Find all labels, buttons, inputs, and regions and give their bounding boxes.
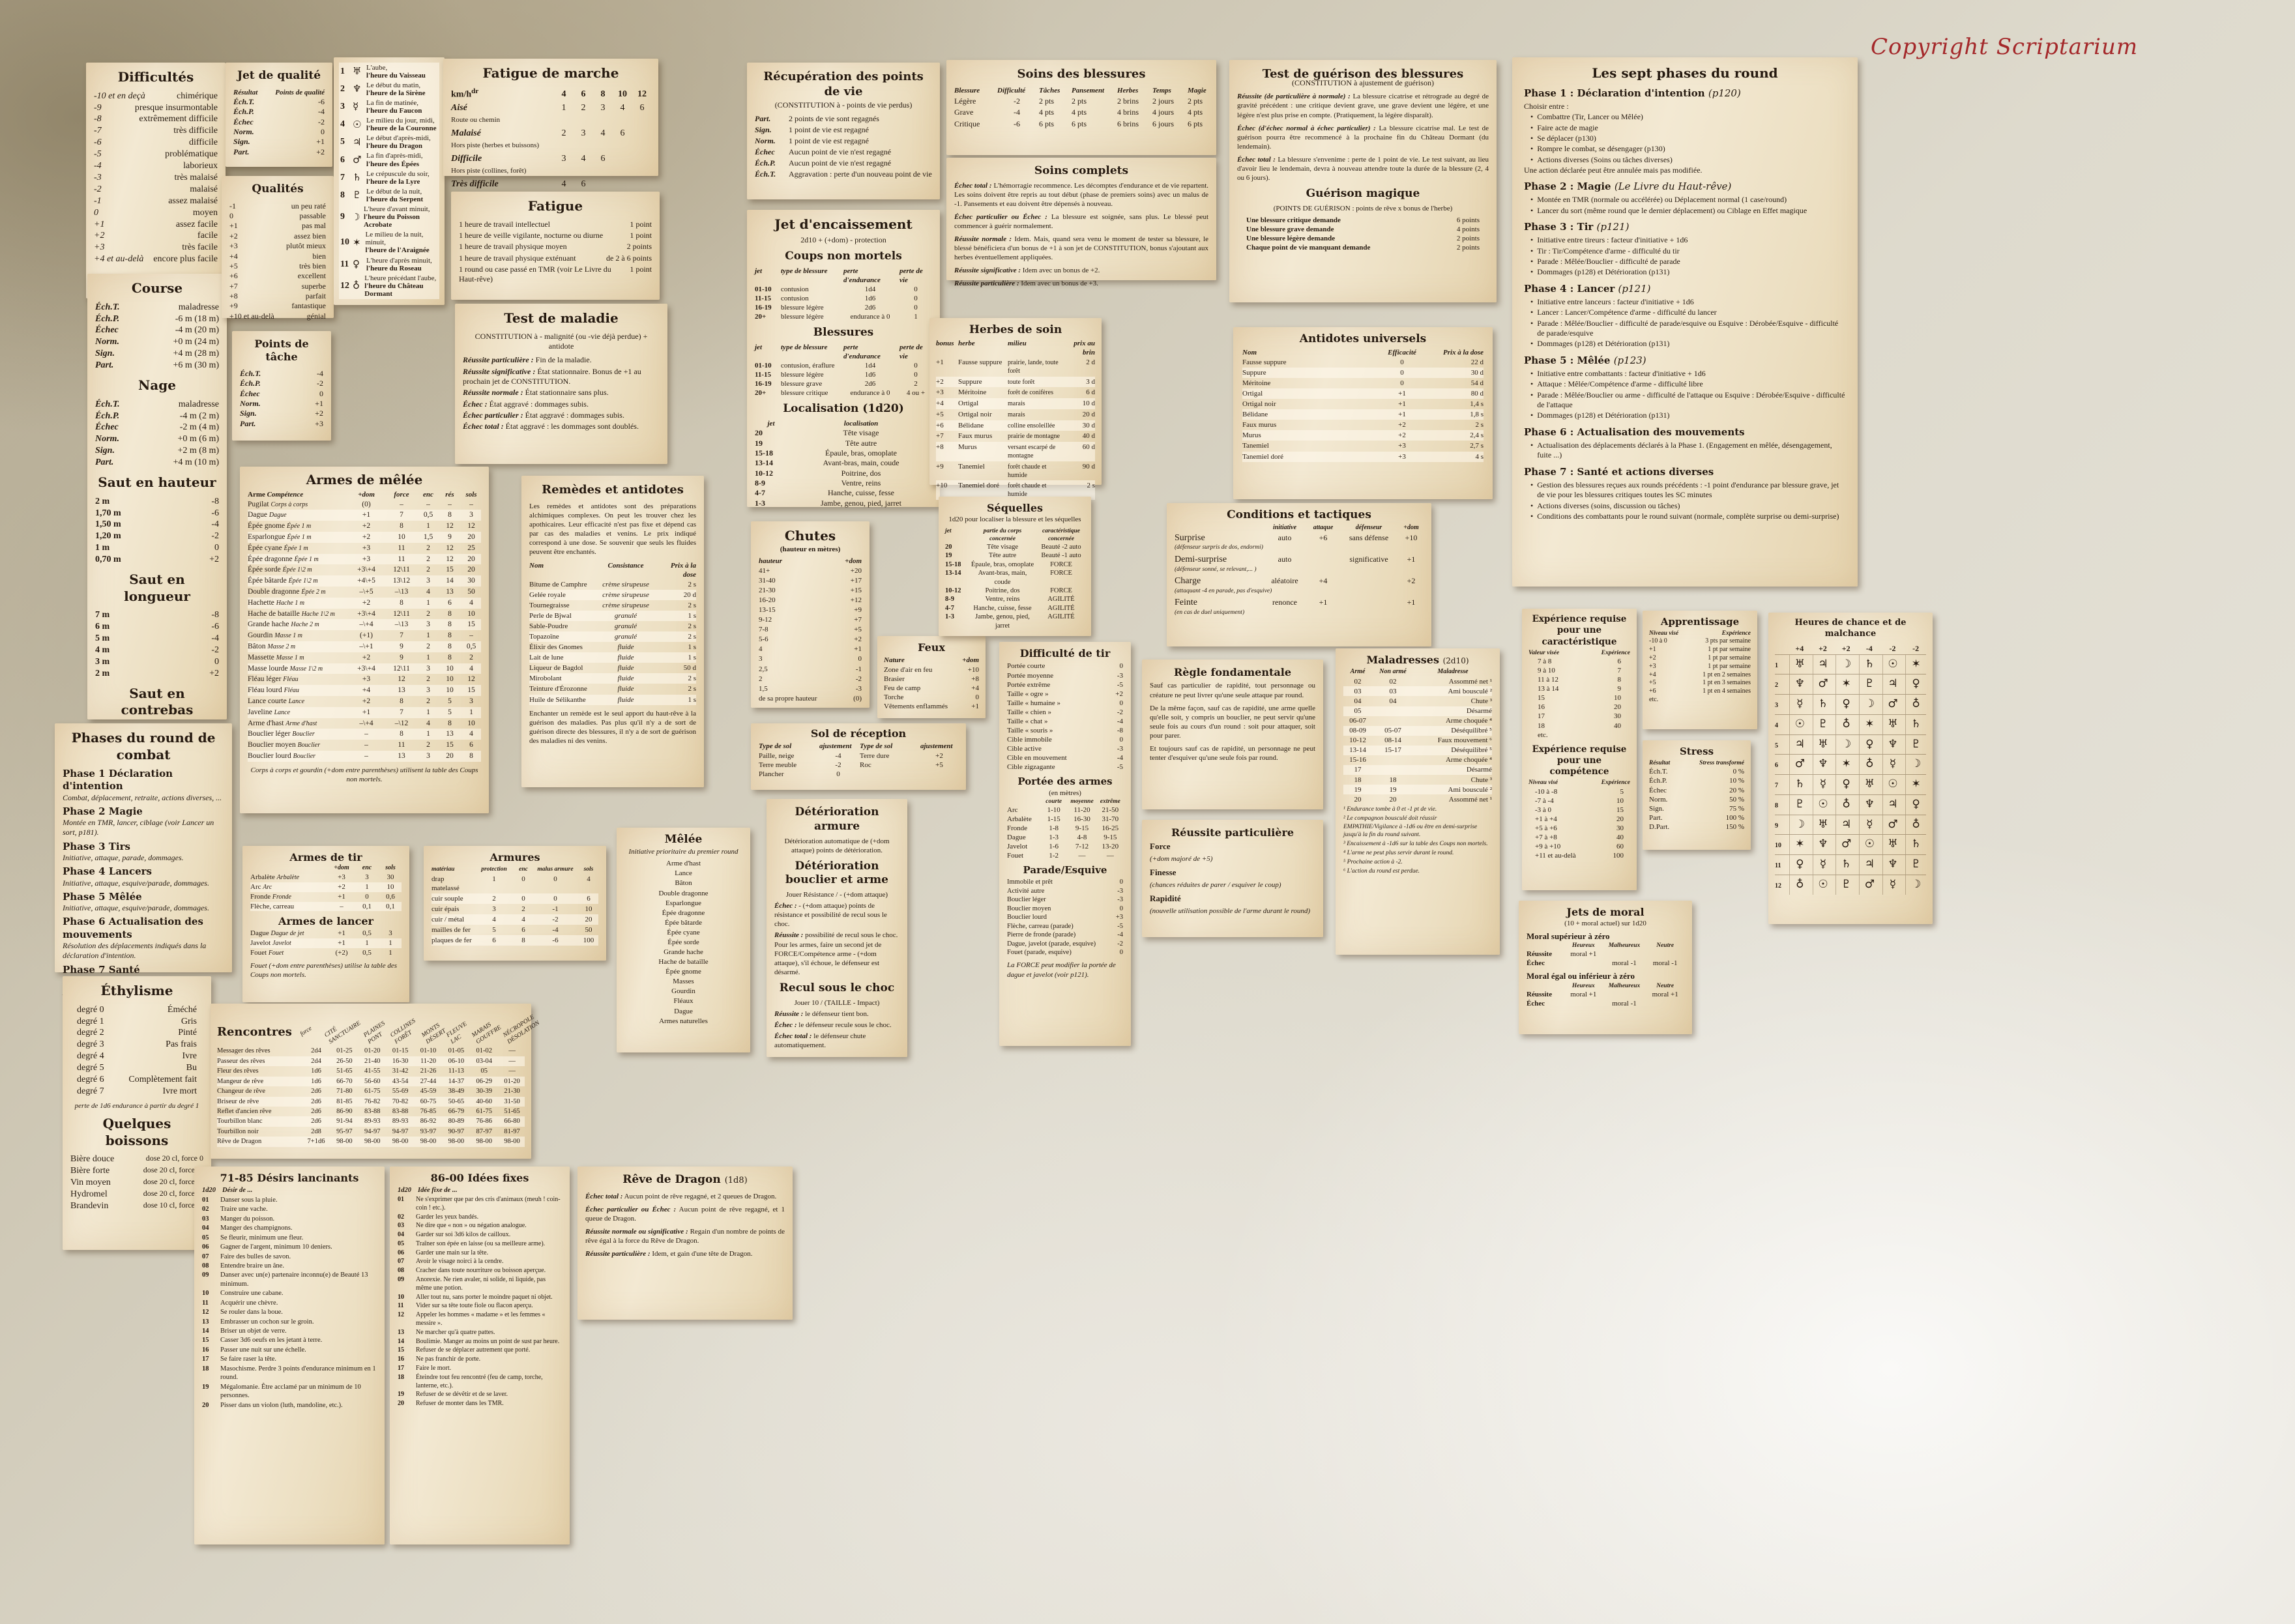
hour-sigil-icon: ♆ — [353, 83, 363, 95]
table-row: -2malaisé — [94, 184, 218, 196]
col-header: Type de sol — [860, 742, 918, 751]
paragraph: Détérioration automatique de (+dom attaq… — [774, 837, 899, 855]
phase-bullet: Montée en TMR (normale ou accélérée) ou … — [1530, 195, 1846, 205]
hour-sigil-icon: ☉ — [1813, 875, 1834, 895]
table-row: Terre meuble-2Roc+5 — [759, 761, 958, 770]
desirs-list: 01Danser sous la pluie.02Traire une vach… — [202, 1196, 377, 1410]
recuperation-table: Part.2 points de vie sont regagnésSign.1… — [755, 114, 932, 179]
col-header: extrême — [1098, 798, 1123, 805]
section-title: Guérison magique — [1237, 187, 1489, 201]
phase-bullet: Lancer du sort (même round que le dernie… — [1530, 206, 1846, 216]
table-row: degré 4Ivre — [77, 1051, 197, 1062]
table-row: 11 à 128 — [1538, 675, 1621, 684]
table-row: Éch.T.0 % — [1649, 767, 1744, 776]
table-row: +9Tanemielforêt chaude et humide90 d — [936, 461, 1095, 481]
armes-melee-table: Pugilat Corps à corps (0)–––– Dague Dagu… — [248, 499, 481, 762]
table-row: +5 à +630 — [1535, 824, 1624, 833]
table-row: Mangeur de rêve1d666-7056-6043-5427-4414… — [217, 1077, 525, 1086]
list-item: 03Manger du poisson. — [202, 1215, 377, 1223]
jet-qualite-table: Éch.T.-6Éch.P.-4Échec-2Norm.0Sign.+1Part… — [233, 97, 325, 157]
table-row: 1 heure de travail physique moyen2 point… — [459, 242, 652, 252]
list-item: 07Avoir le visage noirci à la cendre. — [398, 1258, 562, 1266]
fatigue-table: 1 heure de travail intellectuel1 point1 … — [459, 220, 652, 285]
hour-sigil-icon: ♂ — [353, 154, 363, 166]
phase-block: Phase 7 : Santé et actions diverses Gest… — [1524, 466, 1846, 522]
hour-sigil-icon: ✶ — [1789, 835, 1810, 854]
table-row: Javelot Javelot+111 — [250, 938, 402, 948]
table-row: +9 à +1060 — [1535, 842, 1624, 851]
list-item: 13Ne marcher qu'à quatre pattes. — [398, 1329, 562, 1337]
table-row: Chaque point de vie manquant demande2 po… — [1246, 243, 1480, 252]
list-item: 11Acquérir une chèvre. — [202, 1299, 377, 1307]
list-item: Épée gnome — [623, 967, 744, 977]
phase-item: Phase 1 Déclaration d'intentionCombat, d… — [63, 768, 224, 803]
hour-sigil-icon: ♁ — [1905, 815, 1926, 835]
section-title: Détérioration armure — [774, 805, 899, 834]
card-antidotes: Antidotes universels NomEfficacitéPrix à… — [1233, 327, 1493, 499]
coups-table: 01-10contusion1d4011-15contusion1d6016-1… — [755, 285, 932, 321]
table-row: Javelot1-67-1213-20 — [1007, 842, 1123, 851]
hour-sigil-icon: ♄ — [1905, 715, 1926, 734]
table-row: Bitume de Camphrecrème sirupeuse2 s — [529, 579, 696, 590]
table-row: 1 m0 — [95, 542, 219, 554]
table-row: +11 et au-delà100 — [1535, 851, 1624, 860]
result-item: Échec total : le défenseur chute automat… — [774, 1032, 899, 1050]
remedes-table: Bitume de Camphrecrème sirupeuse2 sGelée… — [529, 579, 696, 705]
col-header: -4 — [1859, 644, 1880, 654]
card-reve-dragon: Rêve de Dragon (1d8) Échec total : Aucun… — [577, 1167, 793, 1320]
feux-table: Zone d'air en feu+10Brasier+8Feu de camp… — [884, 665, 979, 711]
table-row: -10 à -85 — [1535, 787, 1624, 796]
col-header: Résultat — [233, 88, 257, 97]
hour-sigil-icon: ♇ — [1813, 715, 1834, 734]
list-item: 17Faire le mort. — [398, 1365, 562, 1373]
card-encaissement: Jet d'encaissement 2d10 + (+dom) - prote… — [747, 210, 940, 507]
table-row: degré 5Bu — [77, 1062, 197, 1074]
stress-table: Éch.T.0 %Éch.P.10 %Échec20 %Norm.50 %Sig… — [1649, 767, 1744, 832]
col-header: Malheureux — [1605, 982, 1644, 990]
table-row: Bâton Masse 2 m –\+19280,5 — [248, 641, 481, 652]
table-row: 7 à 86 — [1538, 657, 1621, 666]
hour-sigil-icon: ♇ — [1905, 855, 1926, 875]
hour-sigil-icon: ♅ — [1813, 735, 1834, 755]
list-item: 08Entendre braire un âne. — [202, 1262, 377, 1270]
heure-item: 5 ♃ Le début d'après-midi,l'heure du Dra… — [339, 134, 439, 151]
unit-sup: dr — [471, 87, 478, 95]
hour-sigil-icon: ♁ — [1859, 755, 1880, 774]
chutes-table: 41++2031-40+1721-30+1516-20+1213-15+99-1… — [759, 566, 862, 703]
card-title: Rencontres — [217, 1024, 300, 1039]
table-row: 4+1 — [759, 645, 862, 654]
table-row: -10 et en deçàchimérique — [94, 91, 218, 102]
table-row: Grave-44 pts4 pts4 brins4 jours4 pts — [954, 108, 1208, 117]
list-item: Bâton — [623, 878, 744, 888]
table-row: Échecmoral -1moral -1 — [1527, 959, 1684, 968]
chance-row: 6 ♂ ♆ ✶ ♁ ☿ ☽ — [1775, 754, 1926, 774]
table-row: 1 heure de veille vigilante, nocturne ou… — [459, 231, 652, 240]
card-title: Les sept phases du round — [1524, 65, 1846, 82]
table-row: Fleur des rêves1d651-6541-5531-4221-2611… — [217, 1066, 525, 1076]
result-item: Échec particulier : État aggravé : domma… — [463, 411, 660, 420]
col-header: initiative — [1264, 524, 1305, 532]
card-title: Test de maladie — [463, 310, 660, 327]
difficulte-tir-table: Portée courte0Portée moyenne-3Portée ext… — [1007, 661, 1123, 772]
col-header: 10 — [614, 89, 631, 100]
col-header: Efficacité — [1379, 348, 1425, 357]
table-row: Arme d'hast Arme d'hast –\+4–\124810 — [248, 718, 481, 729]
footnote: ⁴ L'arme ne peut plus servir durant le r… — [1343, 849, 1492, 857]
table-row: 19Tête autreBeauté -1 auto — [945, 551, 1085, 560]
col-header: sols — [461, 490, 481, 499]
list-item: 05Se fleurir, minimum une fleur. — [202, 1234, 377, 1242]
card-title: Éthylisme — [70, 983, 203, 1000]
col-header: COLLINES FORÊT — [389, 1017, 422, 1046]
col-header: matériau — [431, 865, 473, 873]
card-soins-complets: Soins complets Échec total : L'hémorragi… — [946, 158, 1216, 280]
hour-sigil-icon: ♆ — [1859, 795, 1880, 815]
herbes-table: +1Fausse suppureprairie, lande, toute fo… — [936, 357, 1095, 500]
col-header: sols — [579, 865, 598, 873]
table-row: +9fantastique — [229, 301, 326, 311]
card-difficulte-tir: Difficulté de tir Portée courte0Portée m… — [999, 642, 1131, 1046]
phase-bullet: Conditions des combattants pour le round… — [1530, 512, 1846, 521]
card-subtitle: (10 + moral actuel) sur 1d20 — [1527, 919, 1684, 928]
card-title: Maladresses — [1366, 654, 1439, 666]
result-item: Échec : - (+dom attaque) points de résis… — [774, 901, 899, 929]
chance-row: 8 ♇ ☉ ♁ ♆ ♃ ♀ — [1775, 794, 1926, 815]
table-row: 13-14Avant-bras, main, coude — [755, 458, 932, 468]
paragraph: Échec total : L'hémorragie recommence. L… — [954, 181, 1208, 209]
hour-sigil-icon: ♅ — [1882, 715, 1903, 734]
table-row: Taille « souris »-8 — [1007, 726, 1123, 735]
table-row: Pugilat Corps à corps (0)–––– — [248, 499, 481, 510]
table-row: 10-12Poitrine, dosFORCE — [945, 587, 1085, 595]
guerison-magique-table: Une blessure critique demande6 pointsUne… — [1237, 216, 1489, 252]
card-title: Fatigue de marche — [451, 65, 650, 82]
sol-table: Paille, neige-4Terre dure+2Terre meuble-… — [759, 751, 958, 779]
table-row: Légère-22 pts2 pts2 brins2 jours2 pts — [954, 96, 1208, 106]
table-row: Bouclier moyen Bouclier –112156 — [248, 740, 481, 751]
paragraph: Réussite particulière : Idem, et gain d'… — [585, 1249, 785, 1258]
list-item: 11Vider sur sa tête toute fiole ou flaco… — [398, 1302, 562, 1311]
col-header: Magie — [1188, 86, 1216, 95]
col-header: Valeur visée — [1528, 649, 1559, 657]
hour-sigil-icon: ☽ — [1835, 655, 1856, 674]
table-row: Gourdin Masse 1 m (+1)718– — [248, 630, 481, 641]
table-row: Bouclier lourd Bouclier –133208 — [248, 751, 481, 762]
hour-sigil-icon: ♃ — [1882, 674, 1903, 694]
results-list: Réussite particulière : Fin de la maladi… — [463, 355, 660, 432]
col-header: défenseur — [1341, 524, 1396, 532]
card-chutes: Chutes (hauteur en mètres) hauteur+dom 4… — [751, 521, 870, 708]
list-item: Épée dragonne — [623, 908, 744, 918]
moral-sup-table: Réussitemoral +1Échecmoral -1moral -1 — [1527, 950, 1684, 968]
qualites-table: -1un peu raté0passable+1pas mal+2assez b… — [229, 201, 326, 321]
paragraph: Échec (d'échec normal à échec particulie… — [1237, 124, 1489, 151]
table-row: -8extrêmement difficile — [94, 113, 218, 125]
hour-sigil-icon: ✶ — [1905, 655, 1926, 674]
list-item: Lance — [623, 869, 744, 878]
table-row: 7-8+5 — [759, 625, 862, 634]
phase-bullet: Se déplacer (p130) — [1530, 134, 1846, 143]
col-header: Non armé — [1375, 668, 1411, 676]
table-row: Éch.P.-6 m (18 m) — [95, 313, 219, 325]
table-row: 1 heure de travail physique exténuantde … — [459, 254, 652, 263]
card-armures: Armures matériauprotectionencmalus armur… — [424, 846, 606, 961]
table-row: Perle de Bjwalgranulé1 s — [529, 611, 696, 621]
table-row: Mirobolantfluide2 s — [529, 673, 696, 684]
chance-row: 11 ♀ ☿ ♄ ♃ ♆ ♇ — [1775, 854, 1926, 875]
card-title: Chutes — [759, 528, 862, 545]
col-header: malus armure — [534, 865, 576, 873]
table-row: 1-3Jambe, genou, pied, jarretAGILITÉ — [945, 613, 1085, 630]
table-row: Reflet d'ancien rêve2d686-9083-8883-8876… — [217, 1107, 525, 1116]
card-title: Apprentissage — [1649, 616, 1751, 628]
table-row: MalaiséHors piste (herbes et buissons) 2… — [451, 128, 650, 151]
phase-bullet: Dommages (p128) et Détérioration (p131) — [1530, 267, 1846, 277]
hour-sigil-icon: ♆ — [1813, 835, 1834, 854]
table-row: Faux murus+22 s — [1242, 420, 1484, 430]
col-header: hauteur — [759, 557, 782, 566]
section-title: Localisation (1d20) — [755, 402, 932, 416]
card-subtitle: 1d20 pour localiser la blessure et les s… — [945, 515, 1085, 524]
card-armes-tir: Armes de tir +domencsols Arbalète Arbalè… — [242, 846, 409, 1002]
hour-sigil-icon: ♄ — [1905, 835, 1926, 854]
table-row: Éch.P.-4 m (2 m) — [95, 411, 219, 422]
table-row: -3 à 015 — [1535, 805, 1624, 815]
card-melee-initiative: Mêlée Initiative prioritaire du premier … — [617, 828, 750, 1052]
table-row: Rêve de Dragon7+1d698-0098-0098-0098-009… — [217, 1137, 525, 1146]
table-row: Portée courte0 — [1007, 661, 1123, 671]
table-row: Sable-Poudregranulé2 s — [529, 621, 696, 631]
table-row: Taille « chat »-4 — [1007, 717, 1123, 726]
footnote: ³ Encaissement à -1d6 sur la table des C… — [1343, 840, 1492, 848]
col-header: 4 — [555, 89, 572, 100]
table-row: Échecmoral -1 — [1527, 999, 1684, 1008]
card-ethylisme: Éthylisme degré 0Éméchédegré 1Grisdegré … — [63, 976, 211, 1250]
table-row: Ortigal noir+11,4 s — [1242, 399, 1484, 409]
card-deterioration: Détérioration armure Détérioration autom… — [767, 799, 907, 1057]
hour-sigil-icon: ☿ — [353, 100, 363, 113]
table-row: +7Faux murusprairie de montagne40 d — [936, 431, 1095, 442]
table-row: 1818Chute ³ — [1343, 775, 1492, 785]
table-row: degré 6Complètement fait — [77, 1074, 197, 1086]
table-row: 06-07Arme choquée ⁴ — [1343, 716, 1492, 726]
col-header: NÉCROPOLE DÉSOLATION — [502, 1013, 542, 1046]
table-row: Hache de bataille Hache 1\2 m +3\+412\11… — [248, 609, 481, 620]
footnote: ⁶ L'action du round est perdue. — [1343, 867, 1492, 875]
hour-sigil-icon: ♂ — [1859, 875, 1880, 895]
heure-item: 7 ♄ Le crépuscule du soir,l'heure de la … — [339, 169, 439, 186]
table-row: +5Ortigal noirmarais20 d — [936, 409, 1095, 420]
col-header: Maladresse — [1414, 668, 1492, 676]
heures-list: 1 ♅ L'aube,l'heure du Vaisseau 2 ♆ Le dé… — [339, 63, 439, 299]
table-row: +31 pt par semaine — [1649, 663, 1751, 671]
table-row: Gelée royalecrème sirupeuse20 d — [529, 590, 696, 600]
chance-grid: 1 ♅ ♃ ☽ ♄ ☉ ✶ 2 ♆ ♂ ✶ ♇ ♃ ♀ — [1775, 654, 1926, 895]
maladresses-notes: ¹ Endurance tombe à 0 et -1 pt de vie.² … — [1343, 805, 1492, 875]
card-title: Règle fondamentale — [1150, 666, 1315, 679]
card-conditions: Conditions et tactiques initiativeattaqu… — [1167, 503, 1431, 646]
phase-block: Phase 1 : Déclaration d'intention (p120)… — [1524, 87, 1846, 176]
paragraph: Échec particulier ou Échec : La blessure… — [954, 212, 1208, 231]
hour-sigil-icon: ♄ — [1813, 695, 1834, 714]
col-header: Expérience — [1601, 649, 1630, 657]
table-row: 1-3Jambe, genou, pied, jarret — [755, 499, 932, 508]
table-row: D.Part.150 % — [1649, 822, 1744, 832]
table-row: Zone d'air en feu+10 — [884, 665, 979, 674]
table-row: 0202Assommé net ¹ — [1343, 676, 1492, 686]
list-item: 14Boulimie. Manger au moins un point de … — [398, 1338, 562, 1346]
table-row: Épée gnome Épée 1 m +2811212 — [248, 521, 481, 532]
hour-sigil-icon: ☿ — [1859, 815, 1880, 835]
paragraph: Jouer Résistance / - (+dom attaque) — [774, 890, 899, 899]
table-row: Échec20 % — [1649, 786, 1744, 795]
table-row: 2-2 — [759, 674, 862, 684]
table-row: 30 — [759, 654, 862, 663]
card-difficultes: Difficultés -10 et en deçàchimérique-9pr… — [86, 63, 226, 298]
card-title: Qualités — [229, 182, 326, 197]
table-row: -7 à -410 — [1535, 796, 1624, 805]
exp-carac-table: 7 à 869 à 10711 à 12813 à 14915101620173… — [1528, 657, 1630, 740]
table-row: 20+blessure légèreendurance à 01 — [755, 312, 932, 321]
phase-item: Phase 3 TirsInitiative, attaque, parade,… — [63, 841, 224, 863]
hour-sigil-icon: ♇ — [1835, 875, 1856, 895]
table-row: Fouet Fouet(+2)0,51 — [250, 948, 402, 958]
table-row: Norm.+0 m (24 m) — [95, 336, 219, 348]
table-row: Portée extrême-5 — [1007, 680, 1123, 689]
antidotes-table: Fausse suppure022 dSuppure030 dMéritoine… — [1242, 357, 1484, 462]
table-row: 15-16Arme choquée ⁴ — [1343, 755, 1492, 765]
reussite-list: Force(+dom majoré de +5)Finesse(chances … — [1150, 841, 1315, 916]
card-sol-reception: Sol de réception Type de solajustementTy… — [751, 723, 966, 790]
card-title: Récupération des points de vie — [755, 69, 932, 99]
card-title: Herbes de soin — [936, 323, 1095, 338]
card-fatigue-marche: Fatigue de marche km/hdr 4 6 8 10 12 Ais… — [443, 59, 658, 176]
table-row: Grande hache Hache 2 m –\+4–\133815 — [248, 619, 481, 630]
col-header: 1d20 — [202, 1186, 216, 1195]
card-title: Difficulté de tir — [1007, 647, 1123, 660]
col-header: Consistance — [596, 561, 656, 570]
table-row: Activité autre-3 — [1007, 887, 1123, 895]
section-title: Saut en contrebas — [95, 686, 219, 719]
table-row: -6difficile — [94, 137, 218, 149]
hour-sigil-icon: ♁ — [1835, 715, 1856, 734]
col-header: Compétence — [267, 491, 304, 499]
formula: 2d10 + (+dom) - protection — [755, 235, 932, 245]
table-row: drap matelassé1004 — [431, 874, 598, 893]
table-row: Hydromeldose 20 cl, force -4 — [70, 1189, 203, 1200]
list-item: Esparlongue — [623, 898, 744, 908]
table-row: 41++20 — [759, 566, 862, 575]
col-header: perte de vie — [899, 343, 932, 361]
col-header: Temps — [1152, 86, 1185, 95]
table-row: Flèche, carreau (parade)-5 — [1007, 922, 1123, 931]
table-row: 0,70 m+2 — [95, 554, 219, 566]
paragraph: Échec particulier ou Échec : Aucun point… — [585, 1205, 785, 1223]
phase-item: Phase 2 MagieMontée en TMR, lancer, cibl… — [63, 805, 224, 838]
table-row: Une blessure critique demande6 points — [1246, 216, 1480, 225]
table-row: 17Désarmé — [1343, 765, 1492, 775]
list-item: 06Garder une main sur la tête. — [398, 1249, 562, 1258]
section-title: Expérience requise pour une compétence — [1528, 744, 1630, 778]
table-row: 05Désarmé — [1343, 706, 1492, 716]
card-subtitle: Initiative prioritaire du premier round — [623, 847, 744, 856]
table-row: -1assez malaisé — [94, 196, 218, 207]
table-row: Bouclier lourd+3 — [1007, 913, 1123, 921]
col-header: Prix à la dose — [1427, 348, 1484, 357]
table-row: 1,5-3 — [759, 684, 862, 693]
hour-sigil-icon: ☽ — [1835, 735, 1856, 755]
list-item: Épée sorde — [623, 937, 744, 947]
list-item: 17Se faire raser la tête. — [202, 1355, 377, 1363]
boissons-table: Bière doucedose 20 cl, force 0Bière fort… — [70, 1153, 203, 1212]
card-heures-chance: Heures de chance et de malchance +4+2+2-… — [1768, 613, 1933, 924]
card-title: Phases du round de combat — [63, 730, 224, 763]
hour-sigil-icon: ♃ — [353, 136, 363, 149]
table-row: Arc Arc+2110 — [250, 882, 402, 892]
result-item: Réussite : possibilité de recul sous le … — [774, 931, 899, 976]
col-header: Expérience — [1722, 630, 1751, 637]
table-row: +7 à +840 — [1535, 833, 1624, 842]
hour-sigil-icon: ☽ — [1905, 875, 1926, 895]
card-heures: 1 ♅ L'aube,l'heure du Vaisseau 2 ♆ Le dé… — [334, 57, 445, 305]
result-item: Échec total : État aggravé : les dommage… — [463, 422, 660, 431]
heure-item: 1 ♅ L'aube,l'heure du Vaisseau — [339, 63, 439, 80]
hour-sigil-icon: ♁ — [1835, 795, 1856, 815]
table-row: Sign.+2 — [240, 409, 323, 418]
result-item: Échec : le défenseur recule sous le choc… — [774, 1021, 899, 1030]
table-row: Norm.+1 — [240, 399, 323, 409]
table-row: +2facile — [94, 230, 218, 242]
table-row: degré 0Éméché — [77, 1004, 197, 1016]
table-row: cuir épais32-110 — [431, 904, 598, 914]
phase-bullet: Actions diverses (Soins ou tâches divers… — [1530, 155, 1846, 165]
table-row: +10 et au-delàgénial — [229, 312, 326, 321]
table-row: 7 m-8 — [95, 609, 219, 621]
list-item: 19Refuser de se dévêtir et de se laver. — [398, 1391, 562, 1399]
hour-sigil-icon: ♂ — [1882, 815, 1903, 835]
table-row: DifficileHors piste (collines, forêt) 34… — [451, 153, 650, 177]
armures-table: drap matelassé1004cuir souple2006cuir ép… — [431, 874, 598, 946]
col-header: jet — [945, 527, 967, 535]
col-header: Neutre — [1646, 942, 1684, 950]
list-item: 20Pisser dans un violon (luth, mandoline… — [202, 1401, 377, 1410]
table-row: +1 à +420 — [1535, 815, 1624, 824]
table-row: Bouclier léger Bouclier –81134 — [248, 729, 481, 740]
list-item: 14Briser un objet de verre. — [202, 1327, 377, 1335]
table-row: 2 m+2 — [95, 668, 219, 680]
list-item: 03Ne dire que « non » ou négation analog… — [398, 1222, 562, 1230]
list-item: 18Éteindre tout feu rencontré (feu de ca… — [398, 1374, 562, 1391]
paragraph: Échec total : La blessure s'envenime : p… — [1237, 155, 1489, 182]
list-item: Grande hache — [623, 948, 744, 957]
ethylisme-note: perte de 1d6 endurance à partir du degré… — [70, 1101, 203, 1110]
points-tache-table: Éch.T.-4Éch.P.-2Échec0Norm.+1Sign.+2Part… — [240, 369, 323, 429]
table-row: degré 7Ivre mort — [77, 1086, 197, 1097]
card-title: Jet de qualité — [233, 69, 325, 83]
table-row: Sign.+4 m (28 m) — [95, 348, 219, 360]
col-header: +2 — [1835, 644, 1856, 654]
phase-bullet: Parade : Mêlée/Bouclier - difficulté de … — [1530, 319, 1846, 339]
table-row: Sign.75 % — [1649, 804, 1744, 813]
card-sept-phases: Les sept phases du round Phase 1 : Décla… — [1512, 57, 1858, 587]
hour-sigil-icon: ✶ — [1859, 715, 1880, 734]
table-row: Bière fortedose 20 cl, force -1 — [70, 1165, 203, 1177]
col-header: Résultat — [1649, 759, 1670, 767]
nage-table: Éch.T.maladresseÉch.P.-4 m (2 m)Échec-2 … — [95, 399, 219, 469]
phase-block: Phase 6 : Actualisation des mouvements A… — [1524, 426, 1846, 461]
